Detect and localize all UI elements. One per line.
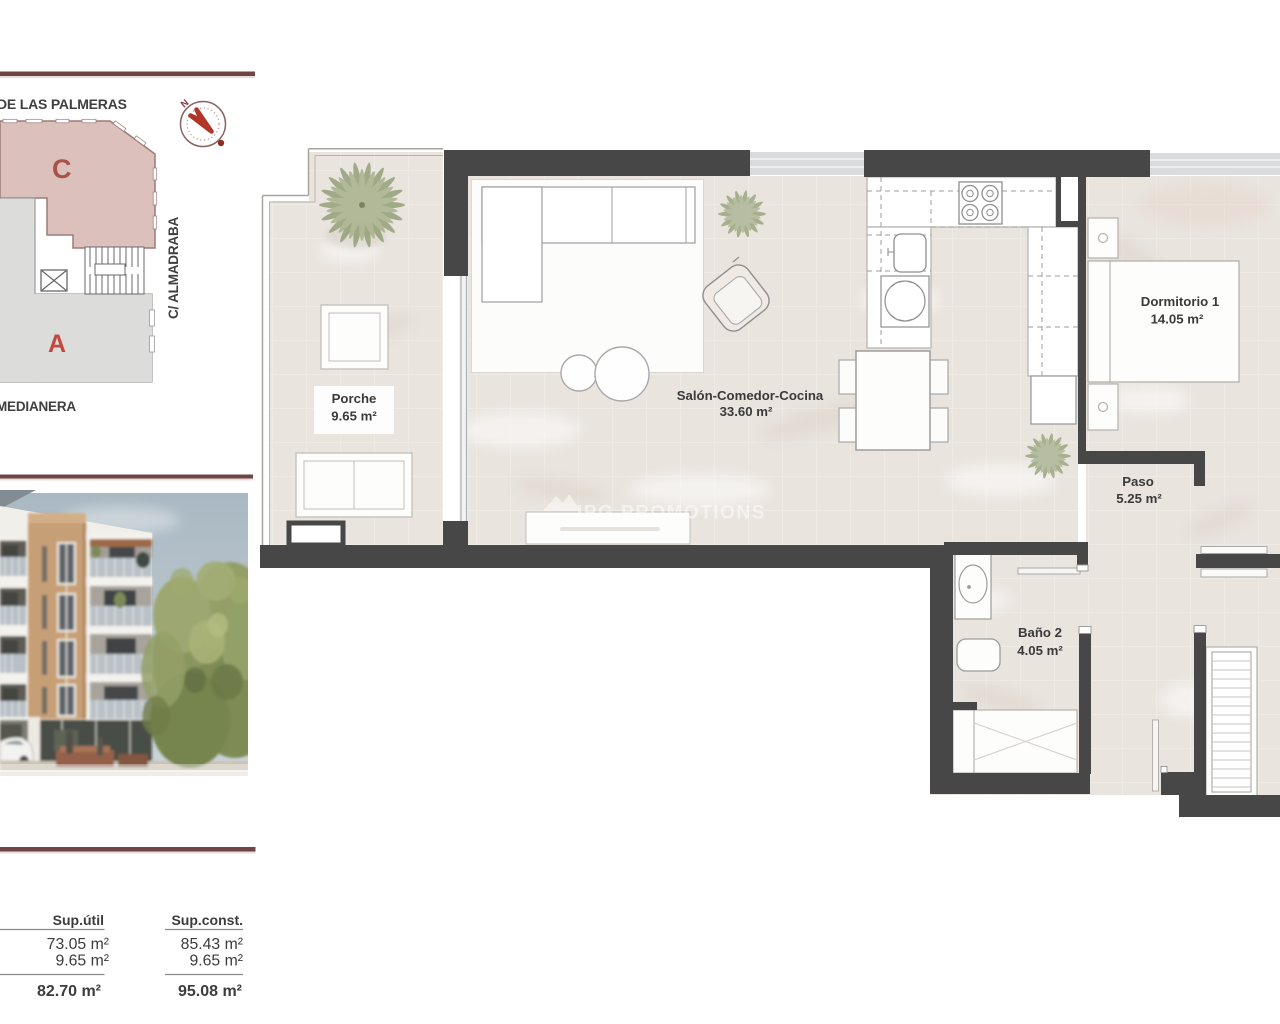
svg-text:Dormitorio 1: Dormitorio 1 [1141, 294, 1219, 309]
svg-text:95.08 m²: 95.08 m² [178, 983, 242, 1000]
svg-text:33.60 m²: 33.60 m² [720, 404, 773, 419]
svg-text:85.43 m²: 85.43 m² [181, 936, 243, 953]
svg-text:Paso: Paso [1122, 474, 1154, 489]
svg-text:82.70 m²: 82.70 m² [37, 983, 101, 1000]
svg-text:Sup.const.: Sup.const. [171, 912, 243, 928]
svg-text:14.05 m²: 14.05 m² [1151, 312, 1204, 327]
svg-text:A: A [48, 330, 66, 358]
svg-text:Baño 2: Baño 2 [1018, 625, 1062, 640]
svg-text:C: C [52, 154, 72, 184]
svg-text:Sup.útil: Sup.útil [53, 912, 104, 928]
svg-text:9.65 m²: 9.65 m² [331, 409, 377, 424]
svg-text:IPG PROMOTIONS: IPG PROMOTIONS [577, 503, 766, 524]
svg-text:MEDIANERA: MEDIANERA [0, 399, 76, 414]
svg-text:Porche: Porche [332, 391, 377, 406]
svg-text:4.05 m²: 4.05 m² [1017, 643, 1063, 658]
svg-text:DE LAS PALMERAS: DE LAS PALMERAS [0, 96, 127, 112]
svg-text:73.05 m²: 73.05 m² [47, 936, 109, 953]
svg-text:C/ ALMADRABA: C/ ALMADRABA [166, 217, 181, 320]
svg-text:9.65 m²: 9.65 m² [189, 953, 243, 970]
svg-text:Salón-Comedor-Cocina: Salón-Comedor-Cocina [677, 388, 824, 403]
svg-text:5.25 m²: 5.25 m² [1116, 491, 1162, 506]
svg-text:9.65 m²: 9.65 m² [55, 953, 109, 970]
